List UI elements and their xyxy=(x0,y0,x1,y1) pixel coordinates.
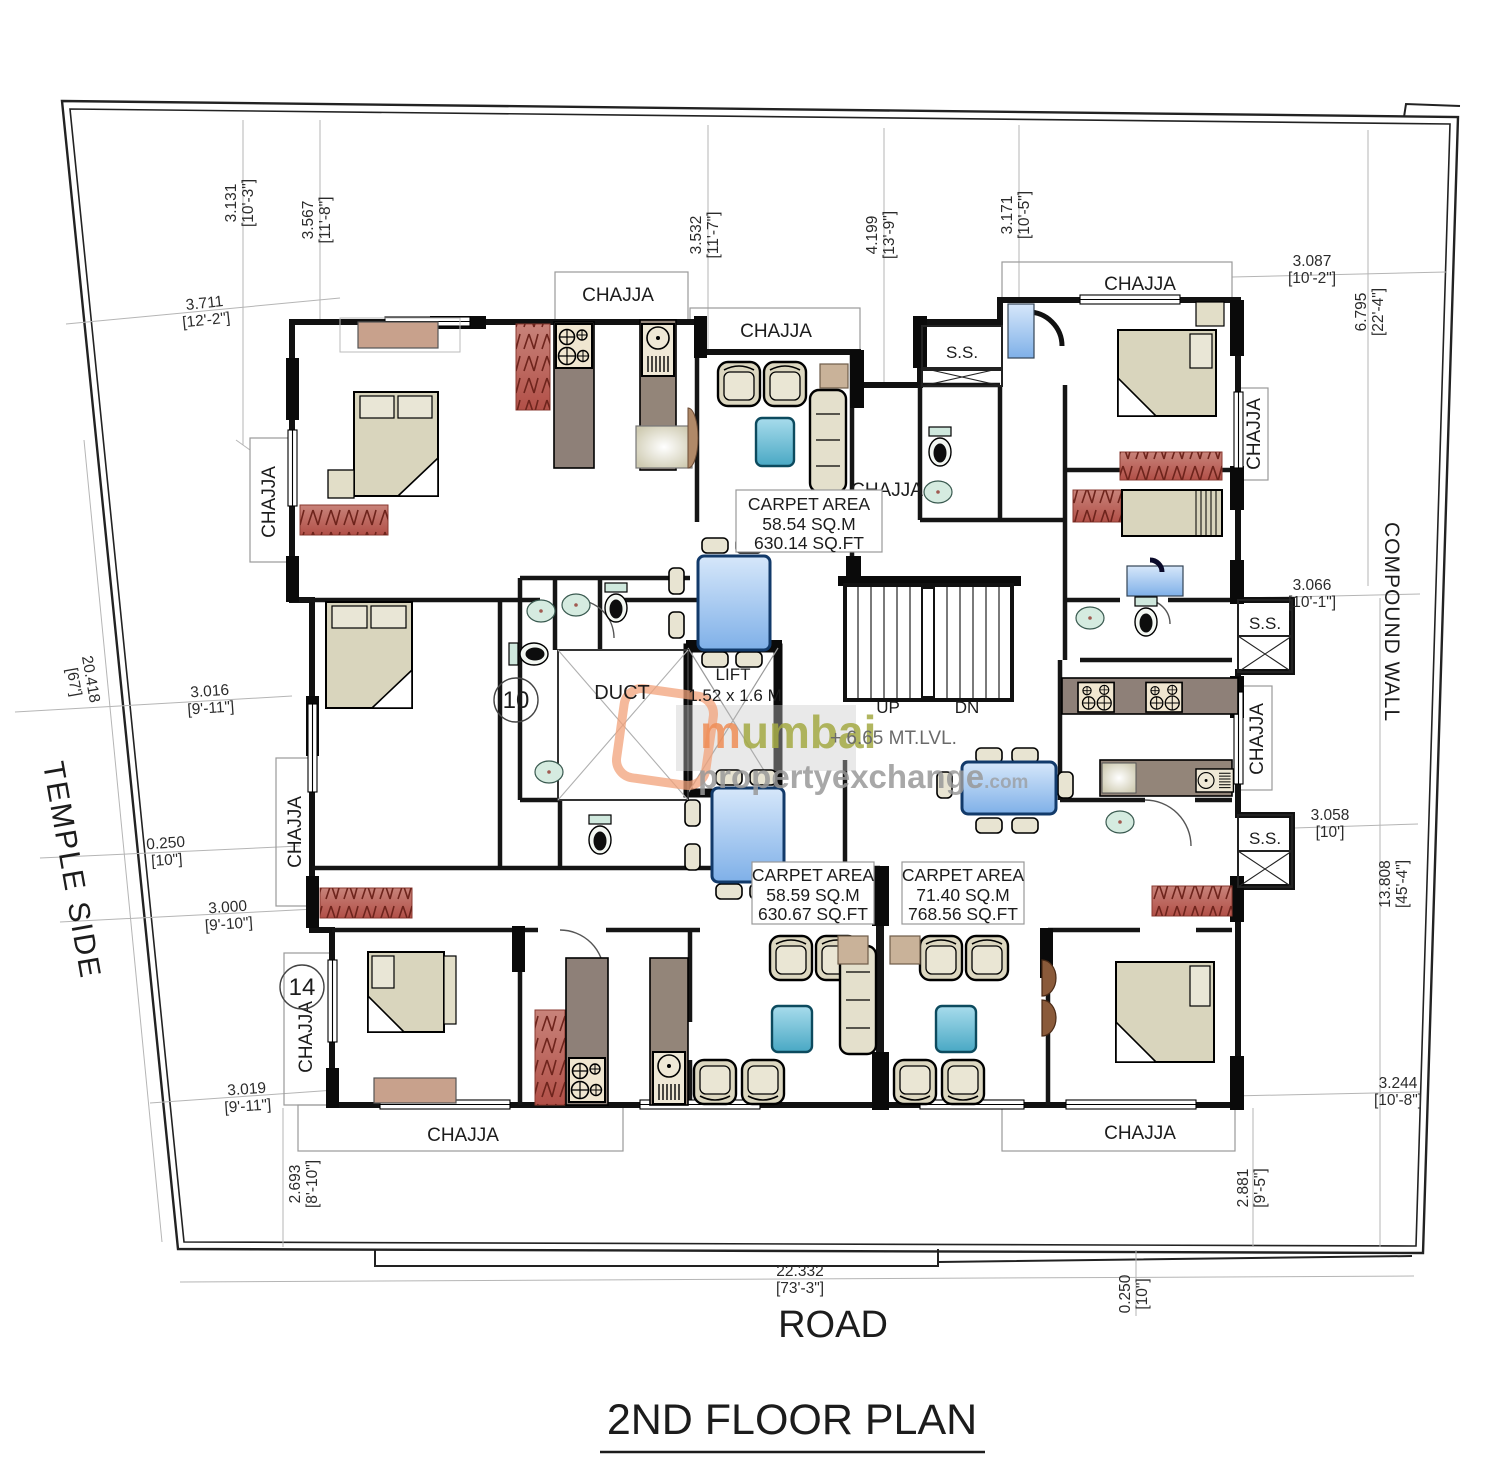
dim: 22.332[73'-3"] xyxy=(776,1263,824,1297)
watermark-line2: propertyexchange.com xyxy=(698,758,1028,795)
carpet-sqft: 630.14 SQ.FT xyxy=(754,533,864,553)
side-table xyxy=(838,936,868,964)
chajja-label: CHAJJA xyxy=(1247,703,1268,775)
carpet-area-box-2: CARPET AREA 58.59 SQ.M 630.67 SQ.FT xyxy=(752,862,875,924)
lift-label: LIFT xyxy=(716,665,751,684)
chajja-label: CHAJJA xyxy=(285,796,306,868)
svg-text:10: 10 xyxy=(503,687,530,714)
lift-size-label: 1.52 x 1.6 M xyxy=(688,686,782,705)
dn-label: DN xyxy=(955,698,980,717)
up-label: UP xyxy=(876,698,900,717)
carpet-sqft: 630.67 SQ.FT xyxy=(758,904,868,924)
duct-label: DUCT xyxy=(594,682,650,704)
floor-plan-canvas: mumbai propertyexchange.com DUCT LIFT 1.… xyxy=(0,0,1500,1478)
chajja-label: CHAJJA xyxy=(427,1125,499,1146)
washbasin-counter xyxy=(1127,566,1183,596)
side-table xyxy=(820,364,848,388)
dim: 6.795[22'-4"] xyxy=(1353,288,1387,336)
carpet-area-box-3: CARPET AREA 71.40 SQ.M 768.56 SQ.FT xyxy=(902,862,1025,924)
dim: 3.019[9'-11"] xyxy=(223,1079,272,1116)
dresser xyxy=(374,1078,456,1103)
bed xyxy=(326,602,412,708)
bed xyxy=(1122,490,1222,536)
dim: 3.058[10'] xyxy=(1311,807,1350,841)
level-label: + 6.65 MT.LVL. xyxy=(830,728,957,749)
dim: 20.418[67'] xyxy=(61,654,103,707)
dim: 3.567[11'-8"] xyxy=(300,197,334,244)
carpet-heading: CARPET AREA xyxy=(748,494,871,514)
dim: 3.000[9'-10"] xyxy=(203,897,253,934)
shower xyxy=(1008,304,1034,358)
dim: 2.881[9'-5"] xyxy=(1235,1168,1269,1207)
temple-side-label: TEMPLE SIDE xyxy=(36,759,107,982)
bed xyxy=(368,952,456,1032)
staircase xyxy=(845,585,1012,700)
chajja-label: CHAJJA xyxy=(582,285,654,306)
dim: 3.066[10'-1"] xyxy=(1288,577,1336,611)
plan-title: 2ND FLOOR PLAN xyxy=(600,1396,985,1452)
chajja-label: CHAJJA xyxy=(1244,398,1265,470)
carpet-sqm: 58.54 SQ.M xyxy=(762,514,855,534)
dim: 0.250[10"] xyxy=(1117,1274,1151,1313)
kitchen-platform xyxy=(636,426,692,468)
dresser xyxy=(358,322,438,348)
carpet-sqm: 58.59 SQ.M xyxy=(766,885,859,905)
chajja-label: CHAJJA xyxy=(740,321,812,342)
dim: 3.087[10'-2"] xyxy=(1288,253,1336,287)
dim: 3.016[9'-11"] xyxy=(186,681,235,718)
road-label: ROAD xyxy=(778,1304,888,1346)
dim: 3.244[10'-8"] xyxy=(1374,1075,1422,1109)
ss-label: S.S. xyxy=(1249,829,1281,848)
ss-label: S.S. xyxy=(1249,614,1281,633)
chajja-label: CHAJJA xyxy=(296,1001,317,1073)
dim: 3.171[10'-5"] xyxy=(999,191,1033,239)
carpet-sqm: 71.40 SQ.M xyxy=(916,885,1009,905)
carpet-heading: CARPET AREA xyxy=(902,865,1025,885)
carpet-heading: CARPET AREA xyxy=(752,865,875,885)
carpet-area-box-1: CARPET AREA 58.54 SQ.M 630.14 SQ.FT xyxy=(736,490,882,553)
dim: 3.711[12'-2"] xyxy=(180,293,231,332)
dim: 2.693[8'-10"] xyxy=(287,1160,321,1208)
floor-plan-page: mumbai propertyexchange.com DUCT LIFT 1.… xyxy=(0,0,1500,1478)
coffee-table xyxy=(772,1006,812,1052)
dim: 3.532[11'-7"] xyxy=(688,212,722,259)
coffee-table xyxy=(936,1006,976,1052)
chajja-label: CHAJJA xyxy=(1104,274,1176,295)
dim: 0.250[10"] xyxy=(146,834,187,871)
side-table xyxy=(890,936,920,964)
dim: 4.199[13'-9"] xyxy=(864,211,898,259)
page-title: 2ND FLOOR PLAN xyxy=(607,1396,977,1444)
ss-label: S.S. xyxy=(946,343,978,362)
bed xyxy=(1116,962,1214,1062)
svg-text:14: 14 xyxy=(289,974,316,1001)
wardrobe-hatch xyxy=(516,324,550,410)
dim: 3.131[10'-3"] xyxy=(223,179,257,227)
chajja-label: CHAJJA xyxy=(1104,1123,1176,1144)
coffee-table xyxy=(756,418,794,466)
compound-wall-label: COMPOUND WALL xyxy=(1380,522,1403,722)
carpet-sqft: 768.56 SQ.FT xyxy=(908,904,1018,924)
dim: 13.808[45'-4"] xyxy=(1377,860,1411,908)
chajja-label: CHAJJA xyxy=(259,466,280,538)
sofa xyxy=(810,390,846,492)
